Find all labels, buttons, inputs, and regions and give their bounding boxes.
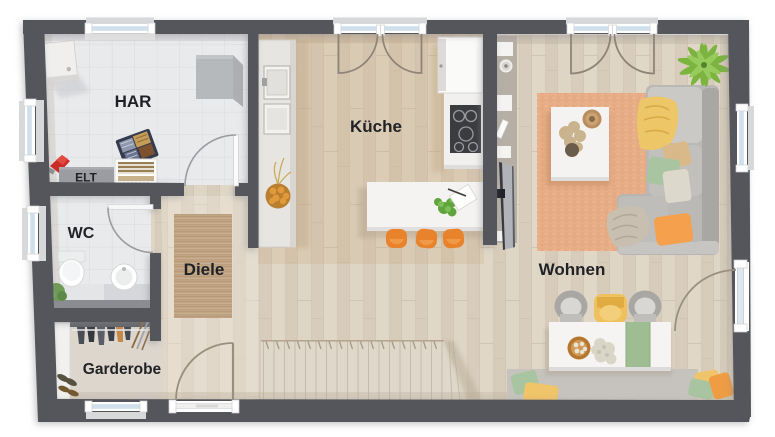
svg-text:Küche: Küche <box>350 117 402 136</box>
svg-text:HAR: HAR <box>115 92 152 111</box>
svg-text:ELT: ELT <box>75 171 97 185</box>
svg-text:Garderobe: Garderobe <box>83 361 162 378</box>
svg-text:Diele: Diele <box>184 260 225 279</box>
svg-text:Wohnen: Wohnen <box>539 260 606 279</box>
svg-text:WC: WC <box>68 225 95 242</box>
